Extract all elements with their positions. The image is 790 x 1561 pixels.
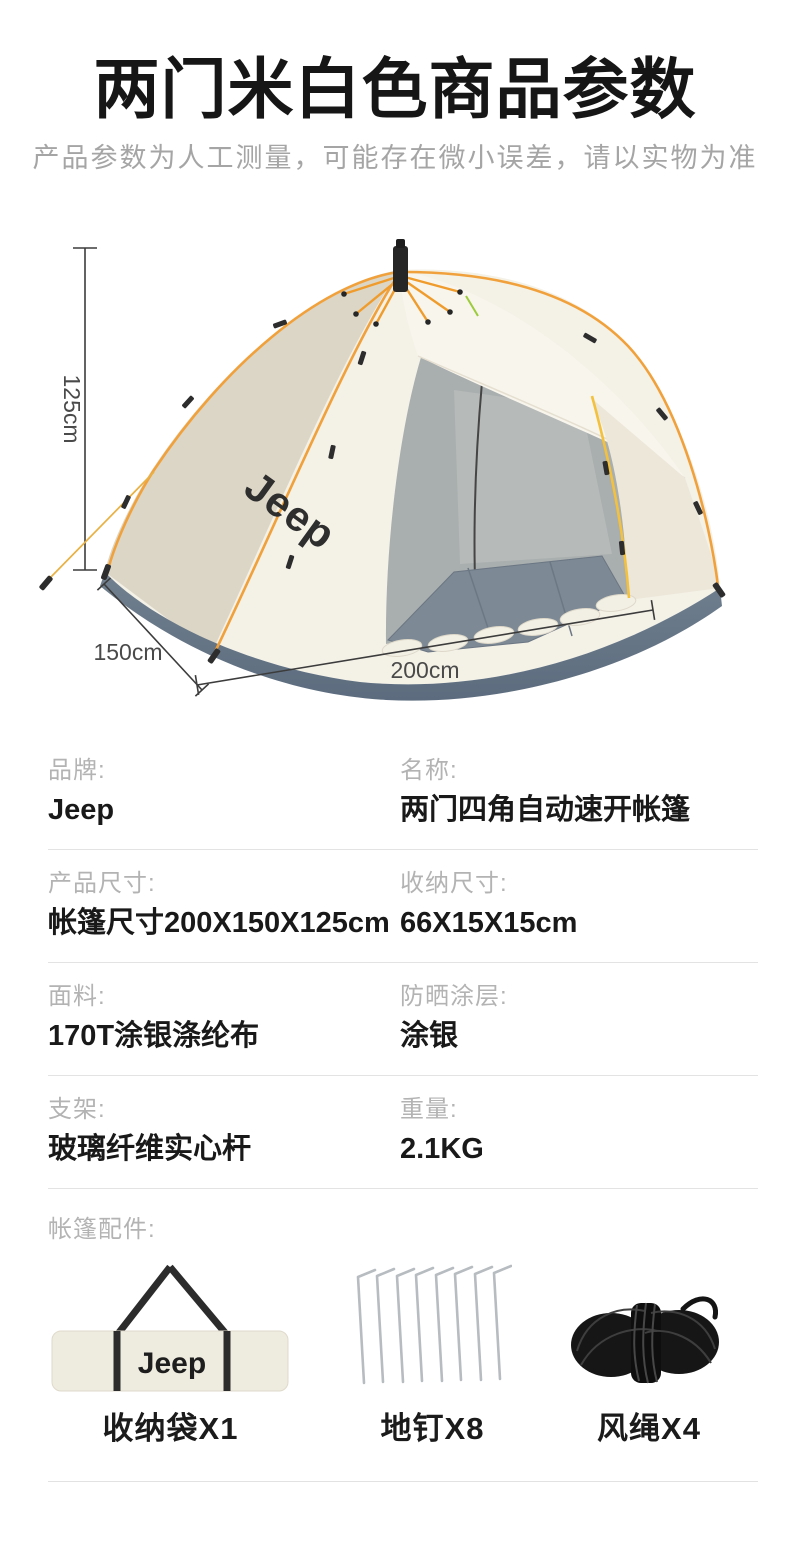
spec-value: 帐篷尺寸200X150X125cm <box>48 908 400 940</box>
spec-value: 66X15X15cm <box>400 908 758 940</box>
accessory-label-rope: 风绳X4 <box>560 1403 738 1448</box>
width-dimension-label: 200cm <box>390 657 459 683</box>
tent-diagram: 125cm <box>30 232 760 702</box>
spec-label: 收纳尺寸: <box>400 872 758 896</box>
spec-value: 玻璃纤维实心杆 <box>48 1134 400 1166</box>
spec-label: 重量: <box>400 1098 758 1122</box>
accessories-label: 帐篷配件: <box>48 1209 156 1244</box>
spec-cell-frame: 支架: 玻璃纤维实心杆 <box>48 1076 400 1188</box>
spec-label: 防晒涂层: <box>400 985 758 1009</box>
spec-cell-packed-size: 收纳尺寸: 66X15X15cm <box>400 850 758 962</box>
spec-label: 支架: <box>48 1098 400 1122</box>
spec-cell-product-size: 产品尺寸: 帐篷尺寸200X150X125cm <box>48 850 400 962</box>
spec-label: 产品尺寸: <box>48 872 400 896</box>
product-spec-page: 两门米白色商品参数 产品参数为人工测量，可能存在微小误差，请以实物为准 125c… <box>0 0 790 1561</box>
spec-cell-name: 名称: 两门四角自动速开帐篷 <box>400 737 758 849</box>
spec-value: 涂银 <box>400 1021 758 1053</box>
spec-label: 面料: <box>48 985 400 1009</box>
accessory-label-stakes: 地钉X8 <box>340 1403 525 1448</box>
spec-cell-coating: 防晒涂层: 涂银 <box>400 963 758 1075</box>
spec-row-frame: 支架: 玻璃纤维实心杆 重量: 2.1KG <box>48 1076 758 1189</box>
page-subtitle: 产品参数为人工测量，可能存在微小误差，请以实物为准 <box>0 136 790 175</box>
storage-bag-icon: Jeep <box>50 1257 290 1397</box>
spec-value: 两门四角自动速开帐篷 <box>400 795 758 827</box>
spec-label: 名称: <box>400 759 758 783</box>
depth-dimension-label: 150cm <box>93 639 162 665</box>
spec-value: 2.1KG <box>400 1134 758 1166</box>
page-title: 两门米白色商品参数 <box>0 36 790 132</box>
spec-label: 品牌: <box>48 759 400 783</box>
spec-cell-weight: 重量: 2.1KG <box>400 1076 758 1188</box>
spec-row-brand-name: 品牌: Jeep 名称: 两门四角自动速开帐篷 <box>48 737 758 850</box>
spec-value: 170T涂银涤纶布 <box>48 1021 400 1053</box>
spec-cell-fabric: 面料: 170T涂银涤纶布 <box>48 963 400 1075</box>
tent-stakes-icon <box>352 1261 512 1391</box>
spec-row-fabric: 面料: 170T涂银涤纶布 防晒涂层: 涂银 <box>48 963 758 1076</box>
spec-value: Jeep <box>48 795 400 827</box>
tent-illustration: 125cm <box>30 232 760 702</box>
accessory-label-bag: 收纳袋X1 <box>48 1403 293 1448</box>
svg-text:Jeep: Jeep <box>138 1347 206 1380</box>
height-dimension-label: 125cm <box>59 374 85 443</box>
wind-rope-icon <box>565 1287 725 1392</box>
spec-cell-brand: 品牌: Jeep <box>48 737 400 849</box>
spec-table: 品牌: Jeep 名称: 两门四角自动速开帐篷 产品尺寸: 帐篷尺寸200X15… <box>48 737 758 1189</box>
spec-row-size: 产品尺寸: 帐篷尺寸200X150X125cm 收纳尺寸: 66X15X15cm <box>48 850 758 963</box>
accessories-section: 帐篷配件: Jeep <box>48 1189 758 1482</box>
